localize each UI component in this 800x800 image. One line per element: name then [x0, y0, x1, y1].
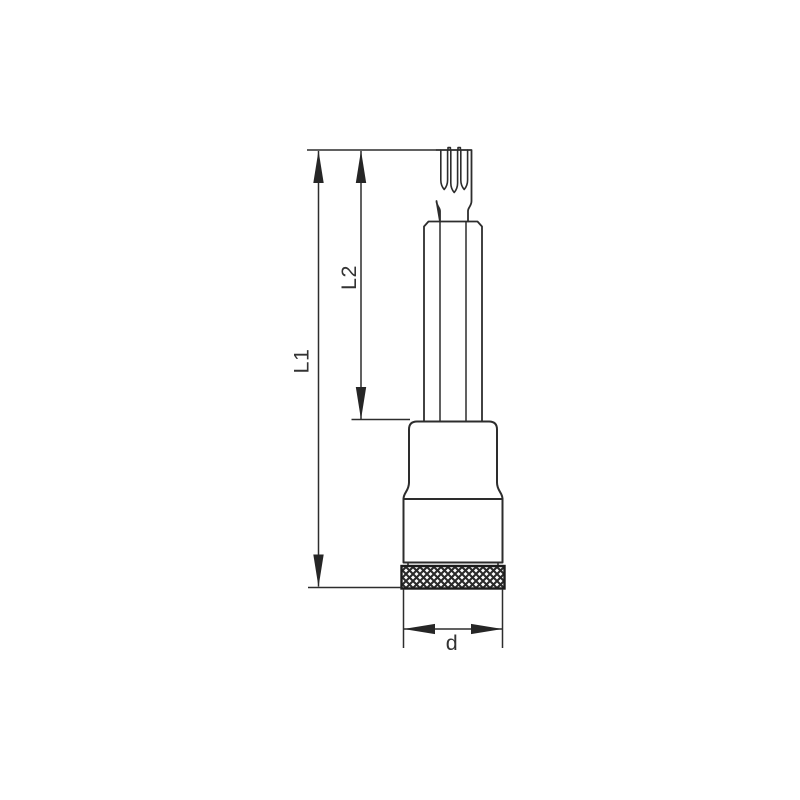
- spline-flute-right: [461, 150, 468, 190]
- knurl-band: [402, 566, 505, 589]
- socket-upper-body: [409, 422, 497, 483]
- socket-flare-right: [497, 483, 503, 500]
- socket-flare-left: [404, 483, 410, 500]
- spline-flute-left: [441, 150, 448, 190]
- socket-body: [404, 422, 503, 567]
- d-arrow-right: [471, 624, 503, 634]
- dimension-label-l2: L2: [337, 265, 361, 290]
- dimension-label-l1: L1: [290, 349, 314, 374]
- dimension-label-d: d: [446, 631, 458, 655]
- hex-shaft: [424, 222, 482, 422]
- d-arrow-left: [404, 624, 436, 634]
- technical-drawing: L1 L2 d: [0, 0, 800, 800]
- spline-flute-center: [451, 150, 458, 193]
- l2-arrow-up: [356, 151, 366, 184]
- l1-arrow-up: [313, 151, 323, 184]
- bit-tip: [437, 148, 472, 222]
- l1-arrow-down: [313, 555, 323, 588]
- drive-body: [404, 499, 503, 563]
- shaft-outline: [424, 222, 482, 422]
- diagram-container: L1 L2 d: [0, 0, 800, 800]
- l2-arrow-down: [356, 387, 366, 420]
